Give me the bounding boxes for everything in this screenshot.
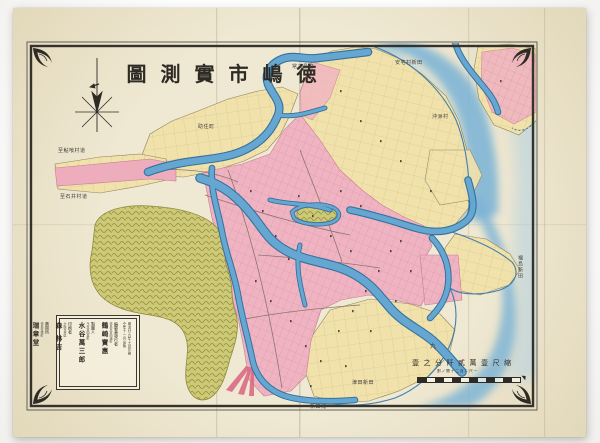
colophon-entry-drafter: 製圖人 今市富田裏町 水谷萬三郎 [76, 322, 96, 383]
colophon-date-printed: 明治廿九年十月印刷 [127, 322, 132, 383]
title-char: 測 [160, 58, 181, 87]
compass-rose [75, 58, 119, 132]
map-label: 沖洲村 [432, 113, 449, 120]
scale-subtext: 割ノ間十二百ニ尺一 [437, 369, 478, 374]
title-char: 圖 [126, 58, 147, 87]
map-label: 新田浦 [310, 403, 327, 410]
colophon-entry-printer: 印刷者 大阪市東區 森 林吉 [53, 322, 73, 383]
scale-text: 壹 之 分 阡 貳 萬 壹 尺 縮 [412, 358, 511, 368]
title-char: 嶋 [262, 58, 283, 87]
map-title: 圖 測 實 市 嶋 徳 [126, 58, 317, 87]
colophon-dates: 明治廿九年十月印刷 仝年十一月出版 [122, 322, 132, 383]
colophon-entry-seller: 賣捌所 德島市幟町 瑞章堂 [30, 322, 50, 383]
map-sheet: 圖 測 實 市 嶋 徳 至鮎喰村道 至石井村道 助任町 常三島町 安宅村新田 沖… [13, 8, 586, 437]
map-label: 至鮎喰村道 [58, 147, 86, 154]
map-label: 福島新田 [517, 255, 524, 279]
colophon-box: 明治廿九年十月印刷 仝年十一月出版 編纂兼發行者 德島市富田浦町 鶴崎實惠 製圖… [56, 315, 140, 390]
title-char: 市 [228, 58, 249, 87]
map-label: 安宅村新田 [395, 59, 423, 66]
colophon-entry-publisher: 編纂兼發行者 德島市富田浦町 鶴崎實惠 [99, 322, 119, 383]
scale-bar [417, 377, 521, 383]
map-label: 九 [430, 341, 437, 350]
map-label: 至石井村道 [60, 193, 88, 200]
title-char: 實 [194, 58, 215, 87]
map-label: 助任町 [198, 123, 215, 130]
photo-background: 圖 測 實 市 嶋 徳 至鮎喰村道 至石井村道 助任町 常三島町 安宅村新田 沖… [0, 0, 600, 443]
map-label: 津田新田 [352, 379, 374, 386]
colophon-columns: 明治廿九年十月印刷 仝年十一月出版 編纂兼發行者 德島市富田浦町 鶴崎實惠 製圖… [59, 318, 137, 387]
map-label: 常三島町 [292, 63, 314, 70]
